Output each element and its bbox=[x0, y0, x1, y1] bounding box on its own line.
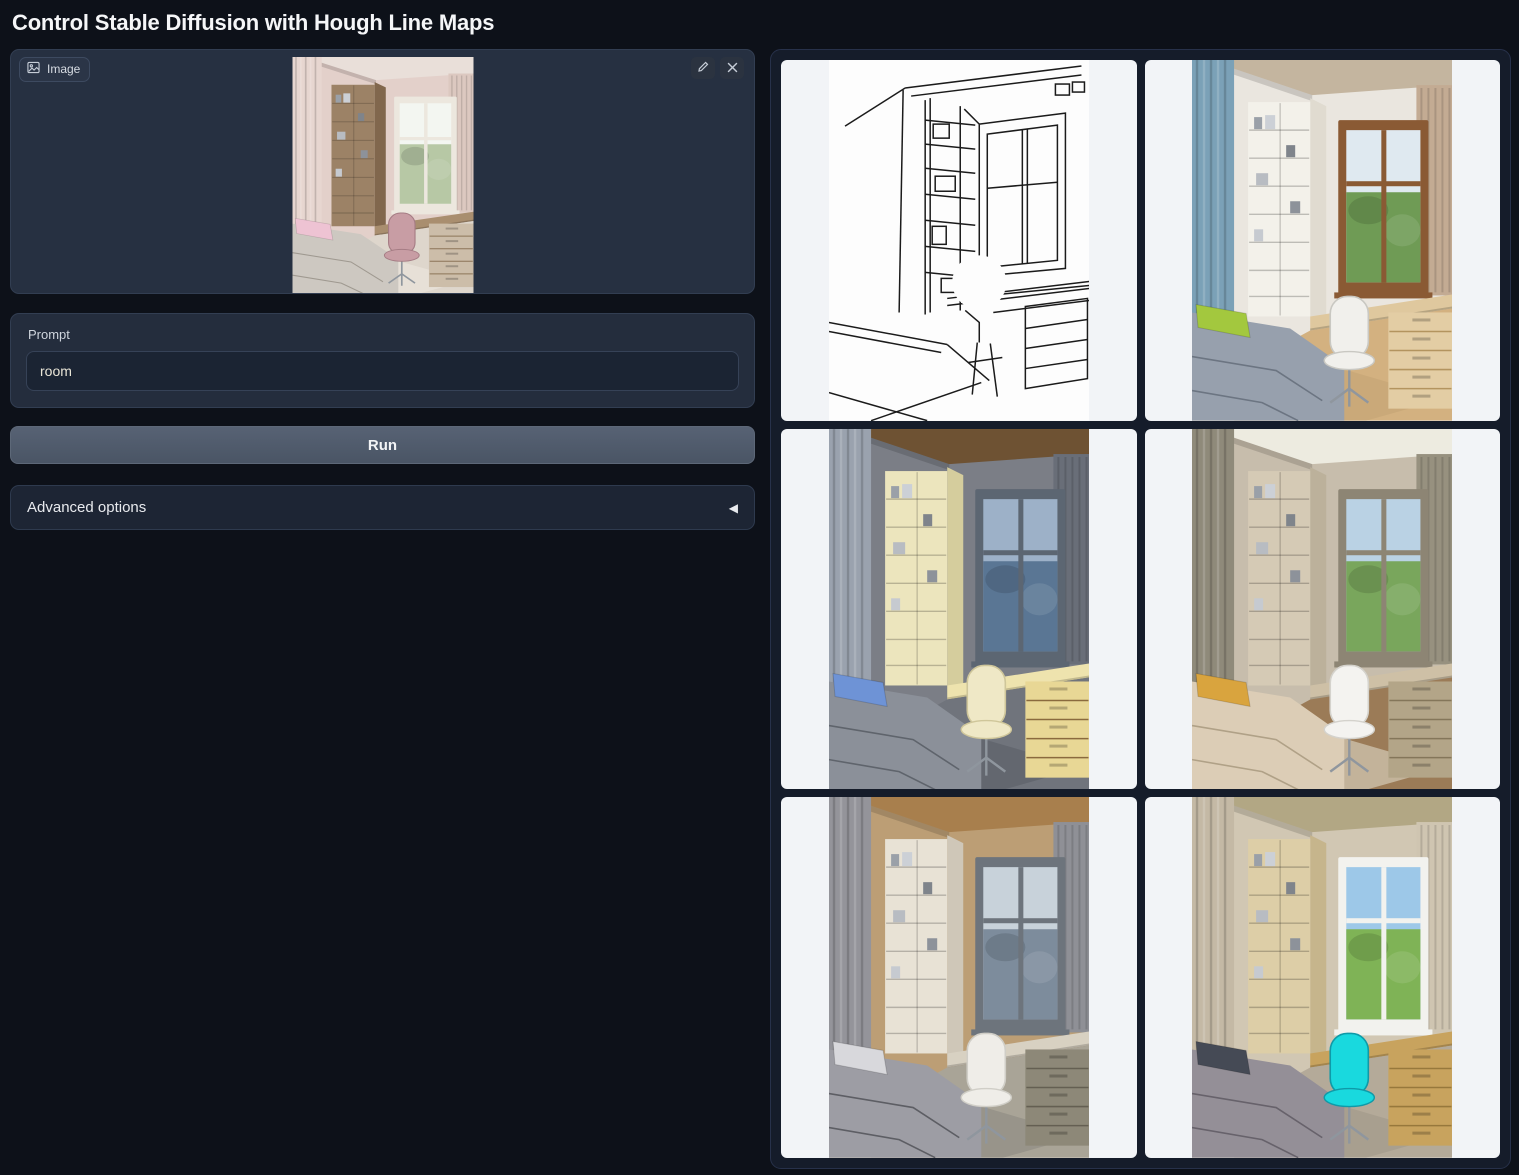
output-gallery bbox=[770, 49, 1511, 1169]
advanced-options-label: Advanced options bbox=[27, 499, 146, 516]
prompt-input[interactable] bbox=[26, 351, 739, 391]
prompt-panel: Prompt bbox=[10, 313, 755, 408]
gallery-image-6 bbox=[1192, 797, 1452, 1158]
input-image[interactable] bbox=[292, 57, 473, 294]
gallery-image-3 bbox=[829, 429, 1089, 790]
image-icon bbox=[27, 61, 40, 77]
gallery-item-3[interactable] bbox=[781, 429, 1137, 790]
gallery-item-4[interactable] bbox=[1145, 429, 1501, 790]
clear-image-button[interactable] bbox=[720, 57, 744, 79]
run-button[interactable]: Run bbox=[10, 426, 755, 464]
close-icon bbox=[727, 62, 738, 75]
image-toolbar bbox=[691, 57, 744, 79]
controls-column: Image bbox=[10, 49, 755, 530]
gallery-item-5[interactable] bbox=[781, 797, 1137, 1158]
prompt-label: Prompt bbox=[28, 327, 737, 342]
gallery-item-6[interactable] bbox=[1145, 797, 1501, 1158]
image-label: Image bbox=[47, 62, 80, 76]
gallery-image-1 bbox=[829, 60, 1089, 421]
gallery-image-5 bbox=[829, 797, 1089, 1158]
app-page: Control Stable Diffusion with Hough Line… bbox=[0, 0, 1519, 1169]
image-label-badge: Image bbox=[19, 57, 90, 82]
gallery-image-2 bbox=[1192, 60, 1452, 421]
pencil-icon bbox=[697, 61, 709, 75]
advanced-options-accordion[interactable]: Advanced options ◀ bbox=[10, 485, 755, 530]
gallery-item-1[interactable] bbox=[781, 60, 1137, 421]
gallery-item-2[interactable] bbox=[1145, 60, 1501, 421]
page-title: Control Stable Diffusion with Hough Line… bbox=[12, 10, 1511, 36]
chevron-left-icon: ◀ bbox=[729, 501, 738, 515]
main-layout: Image bbox=[10, 49, 1511, 1169]
edit-image-button[interactable] bbox=[691, 57, 715, 79]
gallery-image-4 bbox=[1192, 429, 1452, 790]
image-input-panel: Image bbox=[10, 49, 755, 294]
